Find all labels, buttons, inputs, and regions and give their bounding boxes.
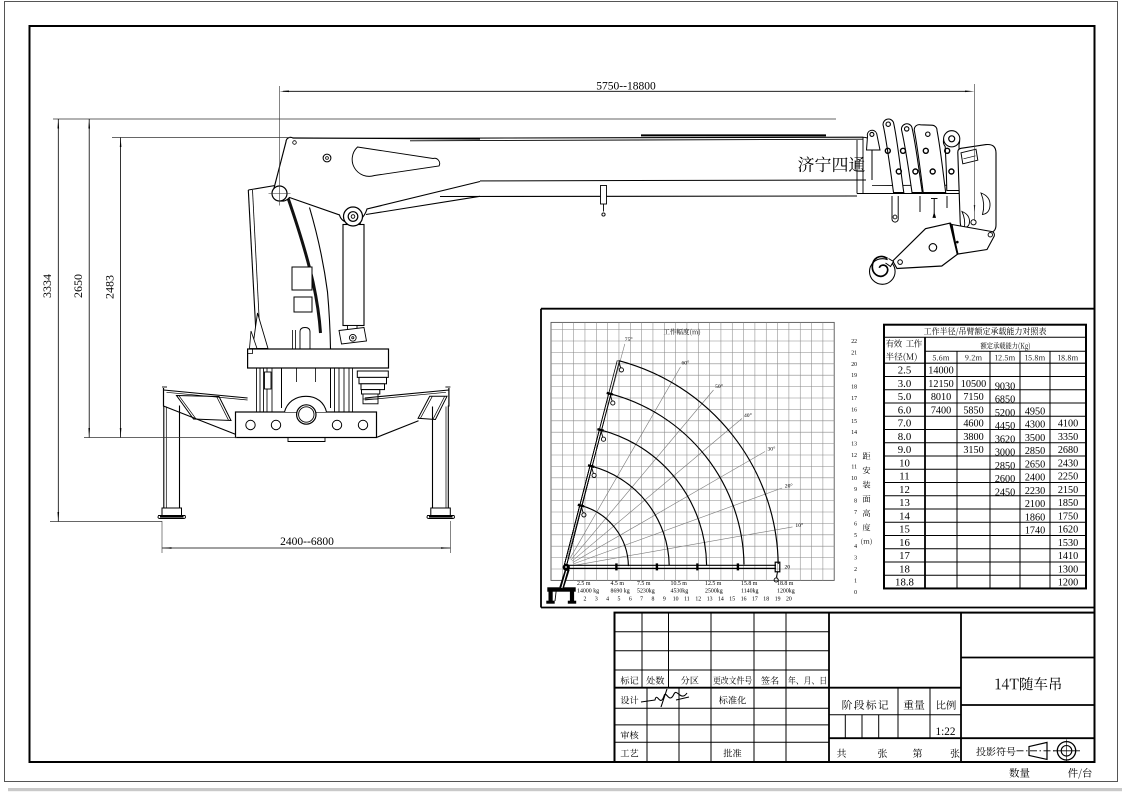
svg-text:2650: 2650: [71, 274, 85, 298]
svg-text:2850: 2850: [995, 461, 1015, 472]
svg-text:18.8: 18.8: [895, 577, 914, 589]
svg-text:14000 kg: 14000 kg: [577, 588, 599, 594]
svg-text:7150: 7150: [963, 392, 983, 403]
svg-text:5230kg: 5230kg: [637, 588, 655, 594]
svg-text:4530kg: 4530kg: [671, 588, 689, 594]
svg-text:7.0: 7.0: [898, 418, 912, 430]
svg-text:2100: 2100: [1025, 499, 1045, 510]
svg-text:20: 20: [851, 362, 857, 368]
svg-text:9.0: 9.0: [898, 444, 912, 456]
svg-text:17: 17: [752, 596, 758, 602]
svg-text:4100: 4100: [1058, 419, 1078, 430]
svg-text:4.5 m: 4.5 m: [611, 581, 625, 587]
svg-text:10: 10: [899, 457, 910, 469]
svg-text:1860: 1860: [1025, 512, 1045, 523]
svg-text:50°: 50°: [715, 383, 723, 390]
svg-text:14000: 14000: [928, 366, 953, 377]
svg-text:2483: 2483: [103, 275, 117, 299]
svg-text:3350: 3350: [1058, 432, 1078, 443]
svg-text:17: 17: [899, 550, 910, 562]
svg-text:4300: 4300: [1025, 420, 1045, 431]
svg-text:4950: 4950: [1025, 406, 1045, 417]
svg-text:20: 20: [786, 596, 792, 602]
svg-text:3500: 3500: [1025, 433, 1045, 444]
svg-text:13: 13: [899, 497, 910, 509]
svg-text:16: 16: [899, 537, 910, 549]
svg-text:4: 4: [854, 544, 857, 550]
svg-text:8: 8: [854, 499, 857, 505]
svg-text:17: 17: [851, 396, 857, 402]
svg-text:10°: 10°: [795, 522, 803, 529]
svg-text:1410: 1410: [1058, 551, 1078, 562]
svg-text:1750: 1750: [1058, 511, 1078, 522]
svg-text:12: 12: [695, 596, 701, 602]
svg-text:2680: 2680: [1058, 445, 1078, 456]
svg-text:2250: 2250: [1058, 472, 1078, 483]
svg-text:3334: 3334: [40, 274, 54, 298]
svg-text:2600: 2600: [995, 474, 1015, 485]
svg-text:21: 21: [851, 350, 857, 356]
svg-text:18: 18: [763, 596, 769, 602]
svg-text:2400: 2400: [1025, 473, 1045, 484]
svg-text:10500: 10500: [961, 379, 986, 390]
svg-text:18.8 m: 18.8 m: [777, 581, 794, 587]
svg-text:3.0: 3.0: [898, 378, 912, 390]
svg-text:14: 14: [851, 430, 857, 436]
svg-text:2.5: 2.5: [898, 365, 912, 377]
svg-text:2500kg: 2500kg: [705, 588, 723, 594]
svg-text:1530: 1530: [1058, 538, 1078, 549]
svg-text:16: 16: [851, 407, 857, 413]
svg-text:2150: 2150: [1058, 485, 1078, 496]
svg-text:1: 1: [854, 578, 857, 584]
svg-text:18: 18: [851, 385, 857, 391]
svg-text:15: 15: [899, 524, 910, 536]
svg-text:9: 9: [854, 487, 857, 493]
svg-text:20°: 20°: [785, 483, 793, 490]
svg-text:10.5 m: 10.5 m: [671, 581, 688, 587]
svg-text:2650: 2650: [1025, 459, 1045, 470]
svg-text:13: 13: [851, 442, 857, 448]
svg-text:12.5 m: 12.5 m: [705, 581, 722, 587]
svg-text:15: 15: [851, 419, 857, 425]
svg-text:1200kg: 1200kg: [777, 588, 795, 594]
svg-text:3: 3: [595, 596, 598, 602]
svg-text:2450: 2450: [995, 487, 1015, 498]
svg-text:1740: 1740: [1025, 526, 1045, 537]
svg-text:3150: 3150: [963, 445, 983, 456]
svg-text:9: 9: [663, 596, 666, 602]
svg-text:19: 19: [851, 373, 857, 379]
svg-text:18: 18: [899, 563, 910, 575]
svg-text:2230: 2230: [1025, 486, 1045, 497]
svg-text:8: 8: [651, 596, 654, 602]
svg-text:3: 3: [854, 556, 857, 562]
svg-text:0: 0: [854, 590, 857, 596]
svg-text:1850: 1850: [1058, 498, 1078, 509]
svg-text:12: 12: [851, 453, 857, 459]
svg-text:5: 5: [854, 533, 857, 539]
svg-text:6: 6: [629, 596, 632, 602]
svg-text:5200: 5200: [995, 408, 1015, 419]
svg-text:1620: 1620: [1058, 525, 1078, 536]
svg-text:2400--6800: 2400--6800: [280, 536, 334, 548]
svg-text:7: 7: [640, 596, 643, 602]
svg-text:3000: 3000: [995, 448, 1015, 459]
svg-text:2430: 2430: [1058, 458, 1078, 469]
svg-text:7.5 m: 7.5 m: [637, 581, 651, 587]
svg-text:75°: 75°: [625, 336, 633, 343]
svg-text:13: 13: [707, 596, 713, 602]
svg-text:5: 5: [617, 596, 620, 602]
svg-text:12: 12: [899, 484, 910, 496]
svg-text:19: 19: [775, 596, 781, 602]
svg-text:3620: 3620: [995, 434, 1015, 445]
svg-text:5850: 5850: [963, 405, 983, 416]
svg-text:2.5 m: 2.5 m: [577, 581, 591, 587]
svg-text:6.0: 6.0: [898, 404, 912, 416]
svg-text:40°: 40°: [744, 412, 752, 419]
svg-text:8010: 8010: [931, 392, 951, 403]
svg-text:11: 11: [851, 464, 857, 470]
svg-text:14: 14: [899, 510, 910, 522]
svg-text:10: 10: [673, 596, 679, 602]
svg-text:1:22: 1:22: [936, 726, 956, 738]
svg-text:4: 4: [606, 596, 609, 602]
svg-text:3800: 3800: [963, 432, 983, 443]
svg-text:9030: 9030: [995, 381, 1015, 392]
svg-text:2: 2: [854, 567, 857, 573]
svg-text:11: 11: [684, 596, 690, 602]
svg-text:15.8 m: 15.8 m: [741, 581, 758, 587]
svg-text:1140kg: 1140kg: [741, 588, 759, 594]
svg-text:60°: 60°: [682, 360, 690, 367]
svg-text:15: 15: [729, 596, 735, 602]
svg-text:20: 20: [785, 565, 791, 571]
svg-text:6850: 6850: [995, 395, 1015, 406]
svg-text:7: 7: [854, 510, 857, 516]
svg-text:1200: 1200: [1058, 578, 1078, 589]
svg-text:22: 22: [851, 339, 857, 345]
svg-text:6: 6: [854, 521, 857, 527]
svg-text:14: 14: [718, 596, 724, 602]
svg-text:1300: 1300: [1058, 564, 1078, 575]
svg-text:4450: 4450: [995, 421, 1015, 432]
svg-text:4600: 4600: [963, 419, 983, 430]
svg-text:8.0: 8.0: [898, 431, 912, 443]
svg-text:12150: 12150: [928, 379, 953, 390]
svg-text:16: 16: [741, 596, 747, 602]
svg-text:2850: 2850: [1025, 446, 1045, 457]
svg-text:8690 kg: 8690 kg: [611, 588, 630, 594]
svg-text:30°: 30°: [768, 446, 776, 453]
svg-text:7400: 7400: [931, 405, 951, 416]
svg-text:5.0: 5.0: [898, 391, 912, 403]
svg-text:5750--18800: 5750--18800: [596, 81, 656, 93]
svg-text:10: 10: [851, 476, 857, 482]
svg-text:2: 2: [584, 596, 587, 602]
svg-text:11: 11: [899, 471, 909, 483]
